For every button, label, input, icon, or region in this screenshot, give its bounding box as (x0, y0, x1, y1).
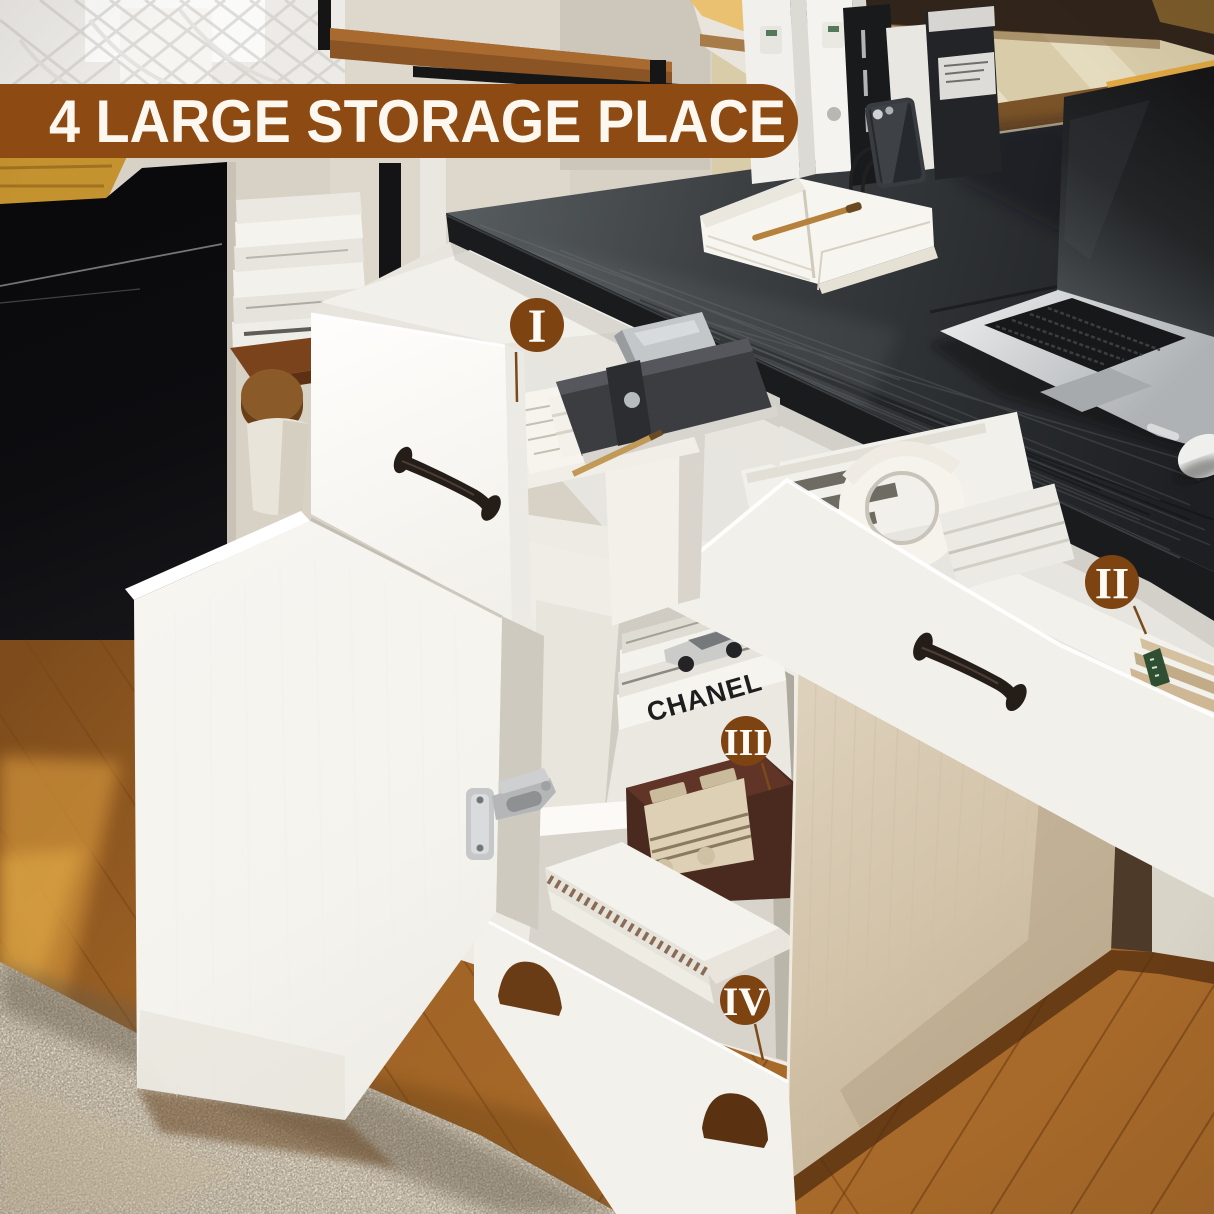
svg-text:4 LARGE STORAGE PLACE: 4 LARGE STORAGE PLACE (49, 88, 786, 155)
